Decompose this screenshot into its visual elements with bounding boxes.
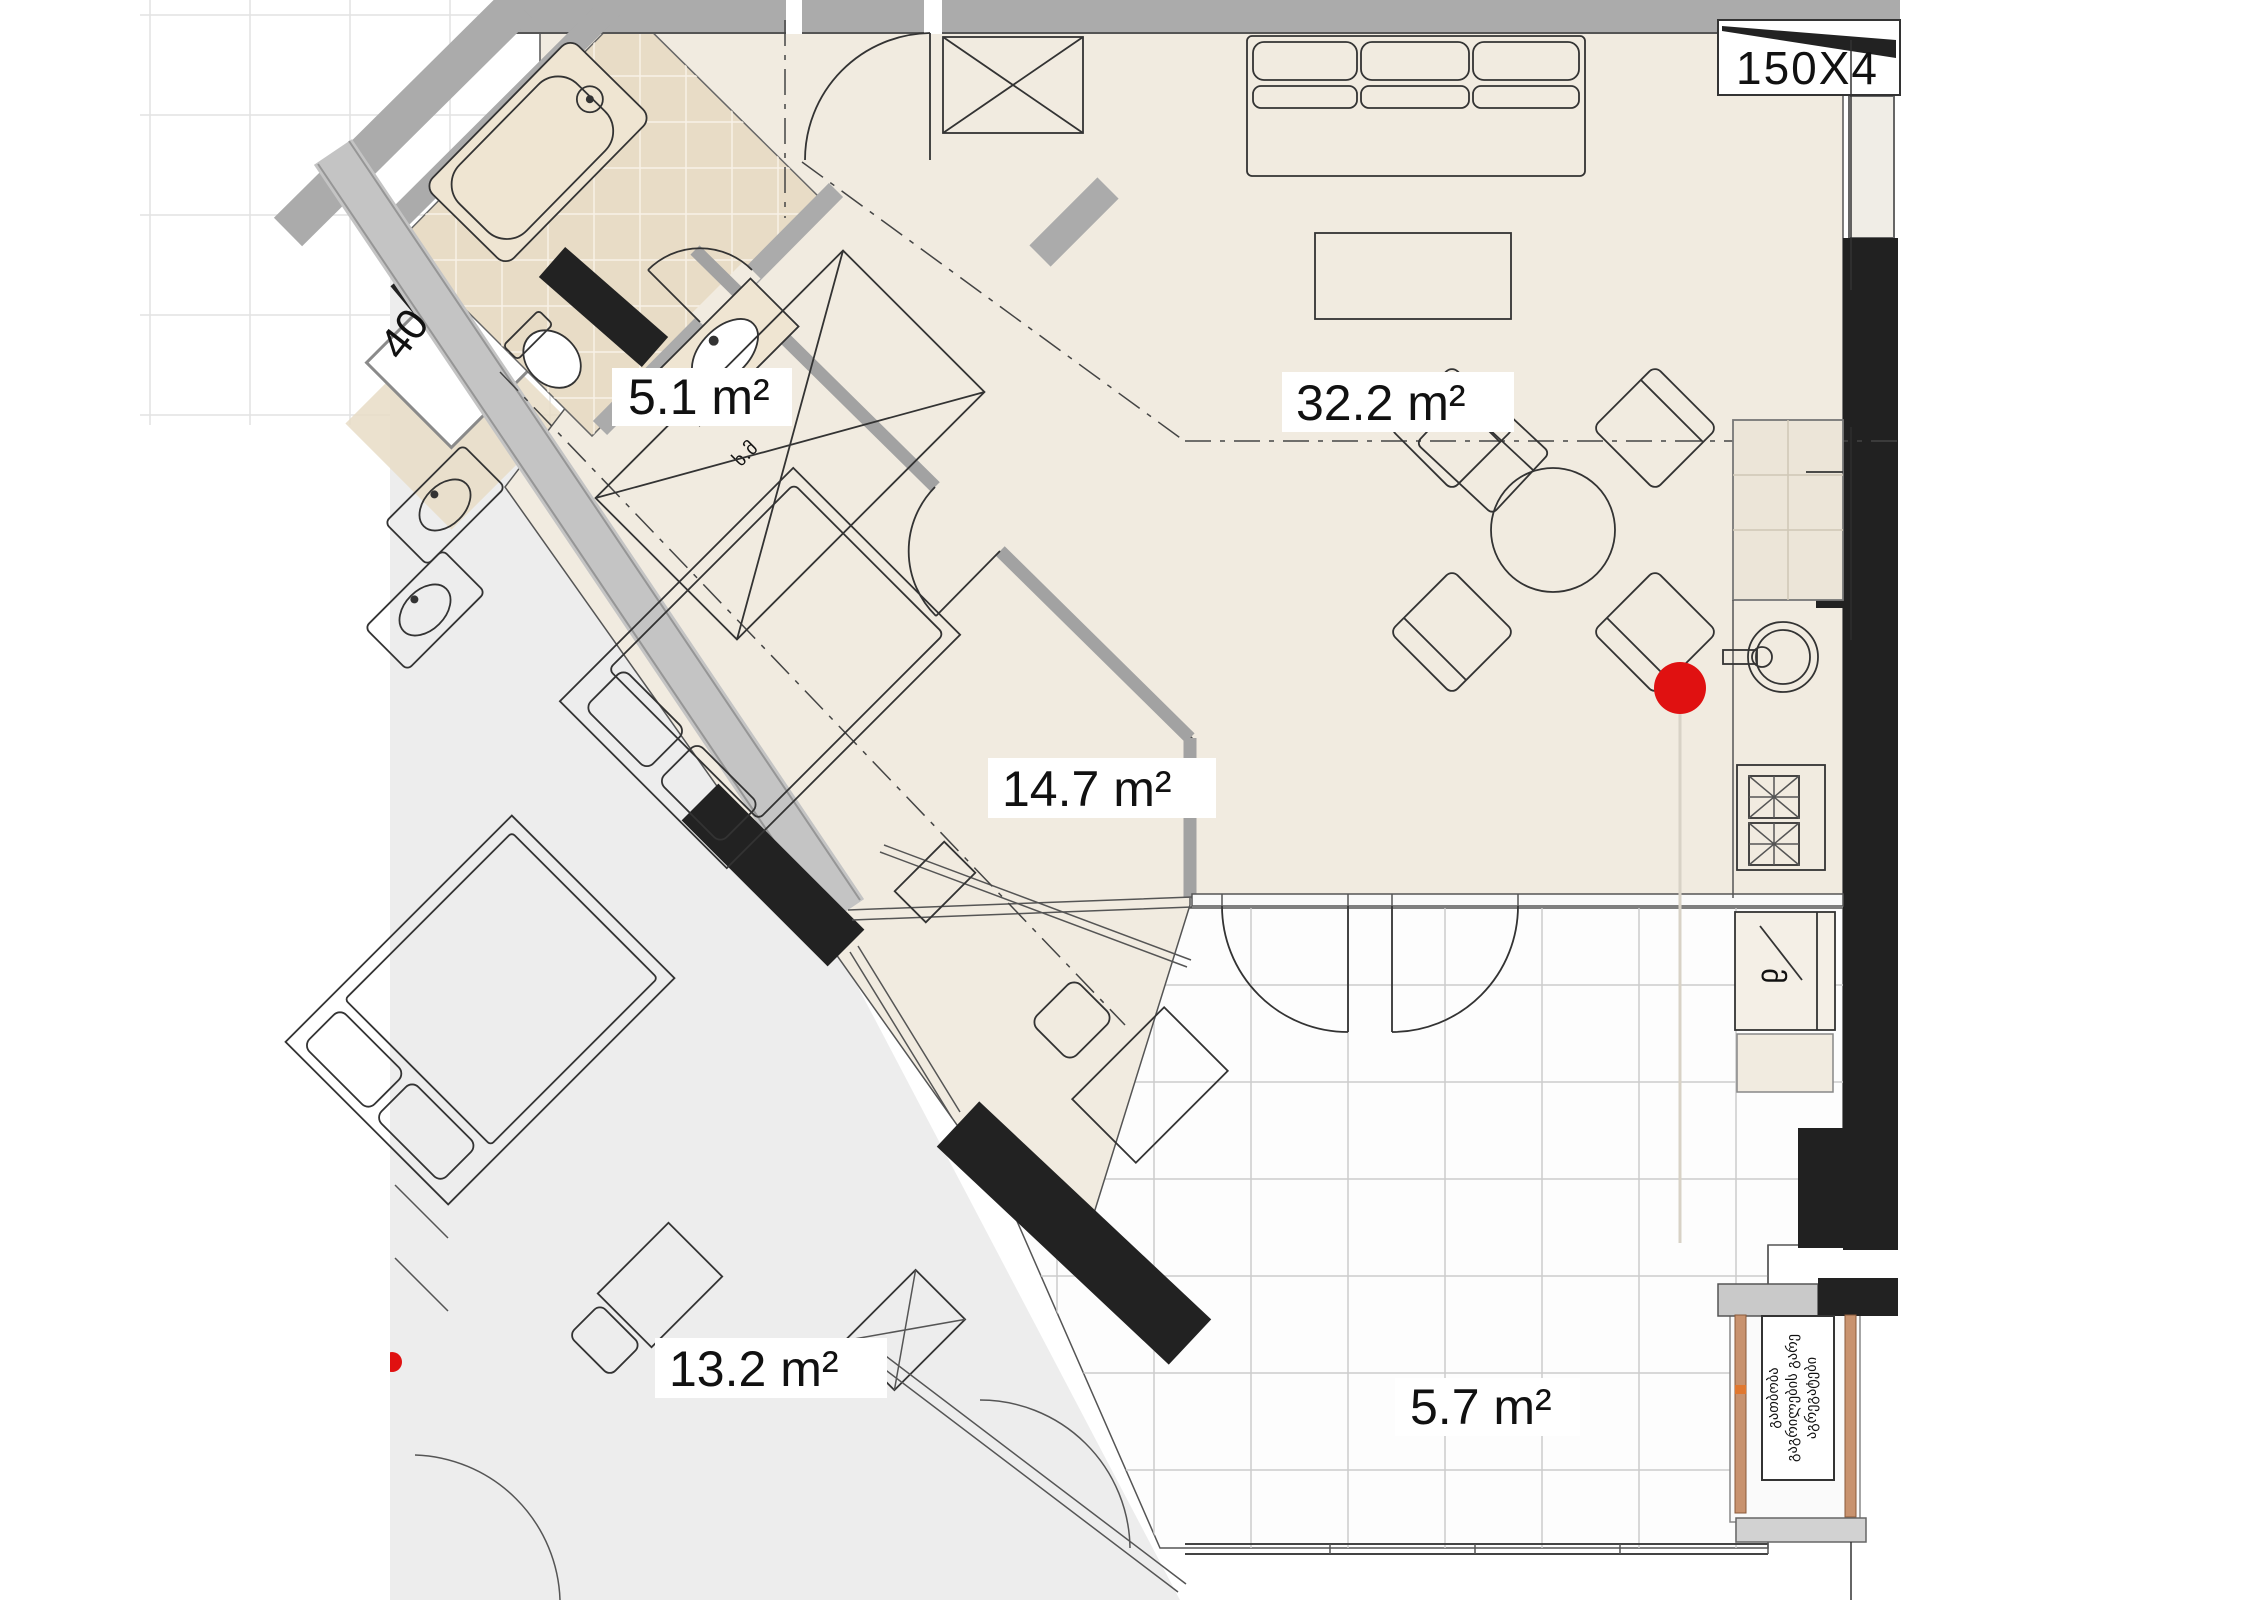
- wall-black-right: [1843, 238, 1898, 1250]
- wall-top: [498, 0, 1900, 32]
- neighbor-bedroom-area-label: 13.2 m²: [669, 1341, 839, 1397]
- shaft-black-block: [1818, 1278, 1898, 1316]
- label-neighbor-bedroom: 13.2 m²: [655, 1338, 887, 1398]
- shaft-label-line3: აგრეგატები: [1803, 1357, 1820, 1439]
- red-dot-marker[interactable]: [1654, 662, 1706, 714]
- window-right-top: [1849, 96, 1894, 238]
- hvac-shaft: გათბობა გაგრილების გარე აგრეგატები: [1718, 1278, 1898, 1600]
- living-room-area-label: 32.2 m²: [1296, 375, 1466, 431]
- shaft-slab-top: [1718, 1284, 1818, 1316]
- shaft-label-line1: გათბობა: [1766, 1367, 1782, 1428]
- floor-plan-canvas: მ ხ.მ: [0, 0, 2263, 1600]
- label-living-room: 32.2 m²: [1282, 372, 1514, 432]
- bathroom-area-label: 5.1 m²: [628, 369, 770, 425]
- kitchen-shelf: [1737, 1034, 1833, 1092]
- window-tag-label: 150X4: [1736, 42, 1879, 94]
- label-bathroom: 5.1 m²: [612, 368, 792, 426]
- louver-right: [1845, 1315, 1856, 1517]
- fridge-letter: მ: [1754, 968, 1789, 984]
- label-bedroom: 14.7 m²: [988, 758, 1216, 818]
- bedroom-area-label: 14.7 m²: [1002, 761, 1172, 817]
- floor-plan: მ ხ.მ: [0, 0, 2263, 1600]
- fridge: მ: [1735, 912, 1835, 1030]
- label-balcony: 5.7 m²: [1395, 1378, 1580, 1436]
- shaft-label-line2: გაგრილების გარე: [1784, 1334, 1801, 1462]
- shaft-slab-bottom: [1736, 1518, 1866, 1542]
- balcony-area-label: 5.7 m²: [1410, 1379, 1552, 1435]
- louver-left: [1735, 1315, 1746, 1513]
